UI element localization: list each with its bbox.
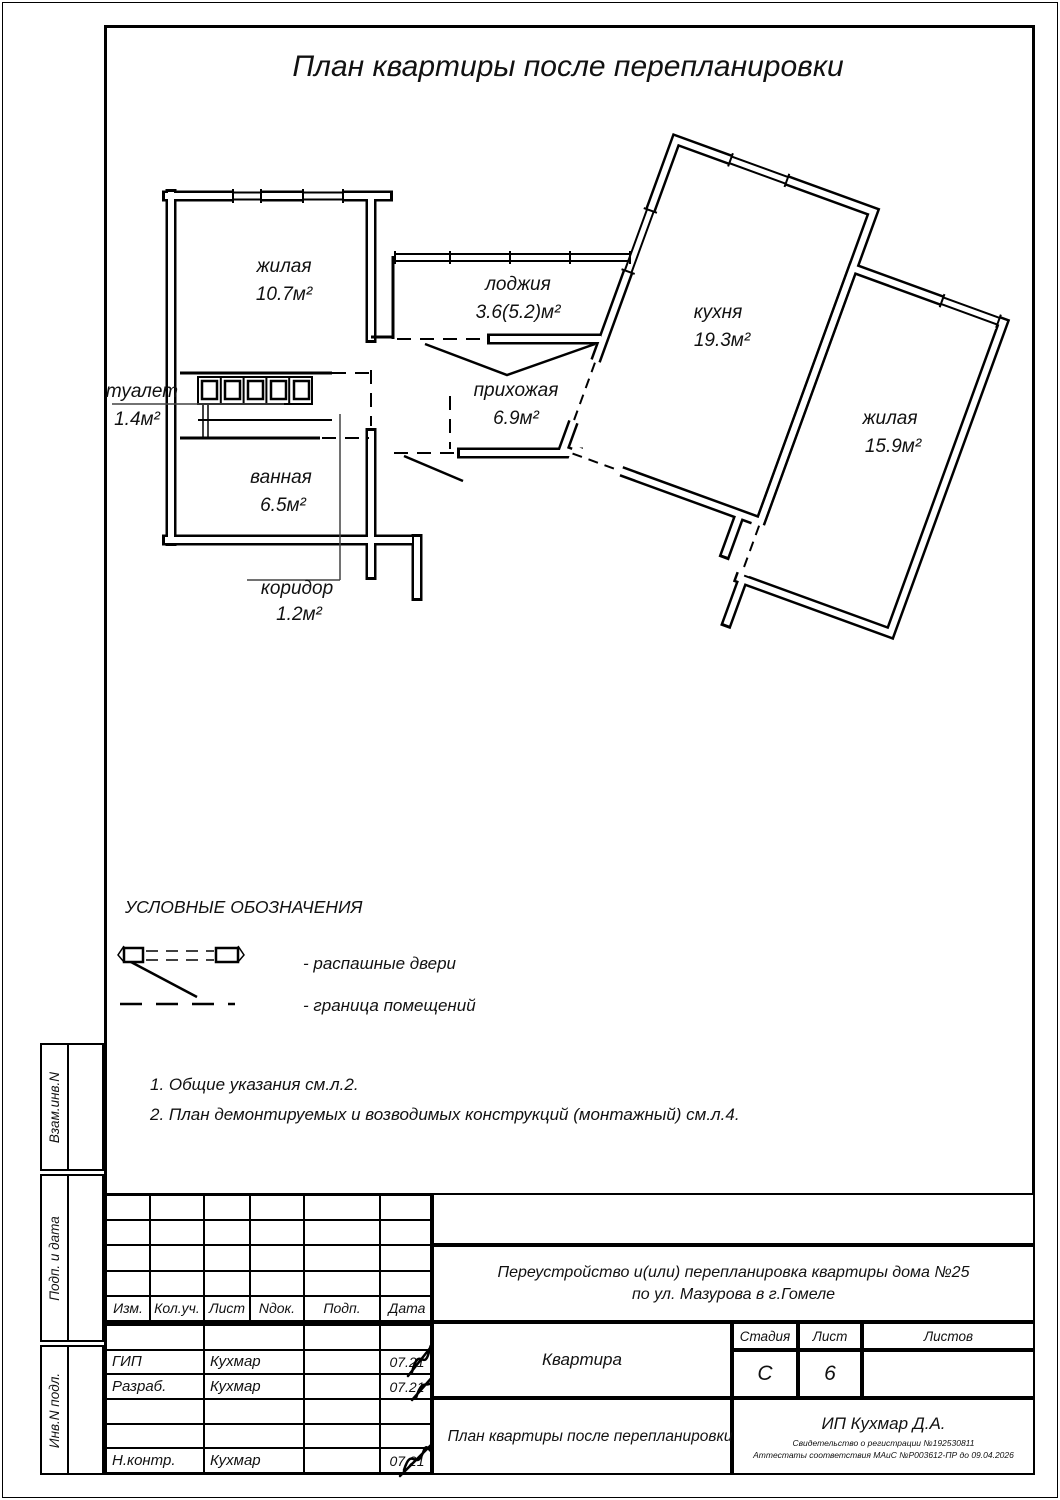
room-area: 19.3м² xyxy=(694,330,751,351)
stamp-cell xyxy=(380,1424,434,1449)
company-certificate: Свидетельство о регистрации №192530811 xyxy=(792,1438,974,1448)
room-name: ванная xyxy=(250,467,312,488)
stamp-cell xyxy=(380,1399,434,1424)
stamp-col-header: Кол.уч. xyxy=(150,1296,204,1321)
stamp-cell xyxy=(304,1424,380,1449)
company-box: ИП Кухмар Д.А. Свидетельство о регистрац… xyxy=(732,1398,1035,1475)
stamp-date: 07.21 xyxy=(380,1374,434,1399)
stage-value: С xyxy=(734,1352,796,1396)
stamp-cell xyxy=(106,1195,150,1220)
toilet-cabinet xyxy=(198,377,332,438)
room-name: жилая xyxy=(861,408,917,429)
room-labels: жилая 10.7м² лоджия 3.6(5.2)м² прихожая … xyxy=(106,256,922,625)
room-area: 15.9м² xyxy=(865,436,922,457)
stamp-signature-cell xyxy=(304,1448,380,1473)
note-line: 1. Общие указания см.л.2. xyxy=(150,1075,359,1094)
stamp-cell xyxy=(106,1220,150,1245)
stamp-cell xyxy=(304,1220,380,1245)
stamp-col-header: Nдок. xyxy=(250,1296,304,1321)
stamp-name: Кухмар xyxy=(204,1350,304,1375)
stamp-name: Кухмар xyxy=(204,1374,304,1399)
stamp-object-box: Квартира xyxy=(432,1322,732,1398)
room-name: кухня xyxy=(694,302,743,323)
stamp-cell xyxy=(204,1195,250,1220)
sheet-header-cell: Лист xyxy=(798,1322,862,1350)
stamp-role: Н.контр. xyxy=(106,1448,204,1473)
stamp-cell xyxy=(380,1195,434,1220)
company-attestation: Аттестаты соответствия МАиС №Р003612-ПР … xyxy=(753,1450,1014,1460)
stamp-col-header: Подп. xyxy=(304,1296,380,1321)
loggia-glazing xyxy=(395,251,631,264)
stamp-cell xyxy=(380,1220,434,1245)
stamp-cell xyxy=(204,1399,304,1424)
stamp-cell xyxy=(380,1325,434,1350)
stamp-signature-cell xyxy=(304,1374,380,1399)
stamp-cell xyxy=(150,1245,204,1270)
sidebar-label-cell: Инв.N подл. xyxy=(42,1347,69,1473)
stamp-cell xyxy=(304,1399,380,1424)
drawing-sheet: План квартиры после перепланировки xyxy=(0,0,1060,1500)
entrance-door-swing xyxy=(404,456,463,481)
sidebar-box-inv: Инв.N подл. xyxy=(40,1345,104,1475)
stamp-date: 07.21 xyxy=(380,1350,434,1375)
page-title: План квартиры после перепланировки xyxy=(292,50,844,83)
room-name: прихожая xyxy=(474,380,559,401)
object-name: Квартира xyxy=(434,1324,730,1396)
stamp-cell xyxy=(204,1245,250,1270)
legend: УСЛОВНЫЕ ОБОЗНАЧЕНИЯ - распашные двери -… xyxy=(118,897,476,1015)
rotated-block-openings xyxy=(537,130,1022,627)
stamp-cell xyxy=(304,1325,380,1350)
swing-door-symbol xyxy=(118,946,244,997)
room-name: коридор xyxy=(261,578,333,599)
drawing-title: План квартиры после перепланировки xyxy=(434,1400,746,1473)
room-area: 1.2м² xyxy=(276,604,322,625)
company-name: ИП Кухмар Д.А. xyxy=(821,1414,945,1434)
project-title-line2: по ул. Мазурова в г.Гомеле xyxy=(632,1286,835,1304)
stamp-col-header: Лист xyxy=(204,1296,250,1321)
stamp-cell xyxy=(250,1220,304,1245)
stamp-project-box: Переустройство и(или) перепланировка ква… xyxy=(432,1245,1035,1322)
stamp-cell xyxy=(250,1195,304,1220)
room-area: 1.4м² xyxy=(114,409,160,430)
stamp-revision-grid: Изм. Кол.уч. Лист Nдок. Подп. Дата xyxy=(104,1193,432,1323)
room-name: туалет xyxy=(106,381,178,402)
sheet-value: 6 xyxy=(800,1352,860,1396)
stamp-cell xyxy=(304,1195,380,1220)
sheets-label: Листов xyxy=(864,1324,1033,1348)
stamp-cell xyxy=(304,1271,380,1296)
stamp-role: ГИП xyxy=(106,1350,204,1375)
note-line: 2. План демонтируемых и возводимых конст… xyxy=(149,1105,740,1124)
room-area: 6.9м² xyxy=(493,408,539,429)
sidebar-label: Инв.N подл. xyxy=(47,1372,62,1447)
sidebar-box-podp: Подп. и дата xyxy=(40,1174,104,1342)
stamp-cell xyxy=(250,1245,304,1270)
notes: 1. Общие указания см.л.2. 2. План демонт… xyxy=(149,1075,740,1124)
stamp-role: Разраб. xyxy=(106,1374,204,1399)
stamp-col-header: Изм. xyxy=(106,1296,150,1321)
legend-title: УСЛОВНЫЕ ОБОЗНАЧЕНИЯ xyxy=(124,897,363,917)
room-boundaries xyxy=(322,339,487,453)
sidebar-label-cell: Взам.инв.N xyxy=(42,1045,69,1169)
stamp-cell xyxy=(150,1220,204,1245)
legend-item-label: - распашные двери xyxy=(303,954,457,973)
stamp-empty-box xyxy=(432,1193,1035,1245)
stamp-col-header: Дата xyxy=(380,1296,434,1321)
sheets-header-cell: Листов xyxy=(862,1322,1035,1350)
leader-lines xyxy=(112,404,340,580)
stamp-cell xyxy=(106,1399,204,1424)
stage-header-cell: Стадия xyxy=(732,1322,798,1350)
room-area: 3.6(5.2)м² xyxy=(476,302,562,323)
sheets-value-cell xyxy=(862,1350,1035,1398)
stamp-cell xyxy=(106,1424,204,1449)
stamp-date: 07.21 xyxy=(380,1448,434,1473)
stage-value-cell: С xyxy=(732,1350,798,1398)
sheet-value-cell: 6 xyxy=(798,1350,862,1398)
stamp-signature-grid: ГИП Кухмар 07.21 Разраб. Кухмар 07.21 Н.… xyxy=(104,1323,432,1475)
stamp-cell xyxy=(106,1325,204,1350)
sidebar-label: Подп. и дата xyxy=(47,1216,62,1301)
sidebar-label-cell: Подп. и дата xyxy=(42,1176,69,1340)
stamp-cell xyxy=(204,1220,250,1245)
stamp-cell xyxy=(150,1271,204,1296)
room-name: лоджия xyxy=(484,274,551,295)
room-name: жилая xyxy=(255,256,311,277)
sidebar-box-vzam: Взам.инв.N xyxy=(40,1043,104,1171)
project-title-line1: Переустройство и(или) перепланировка ква… xyxy=(498,1264,970,1282)
stamp-cell xyxy=(150,1195,204,1220)
stamp-cell xyxy=(106,1245,150,1270)
legend-item-label: - граница помещений xyxy=(303,996,476,1015)
sidebar-label: Взам.инв.N xyxy=(47,1071,62,1142)
stamp-cell xyxy=(304,1245,380,1270)
stamp-name: Кухмар xyxy=(204,1448,304,1473)
stage-label: Стадия xyxy=(734,1324,796,1348)
sheet-label: Лист xyxy=(800,1324,860,1348)
stamp-cell xyxy=(106,1271,150,1296)
balcony-door-swing xyxy=(425,344,595,375)
drawing-title-box: План квартиры после перепланировки xyxy=(432,1398,732,1475)
room-area: 6.5м² xyxy=(260,495,306,516)
stamp-cell xyxy=(380,1245,434,1270)
stamp-signature-cell xyxy=(304,1350,380,1375)
stamp-cell xyxy=(204,1271,250,1296)
stamp-cell xyxy=(250,1271,304,1296)
stamp-cell xyxy=(204,1325,304,1350)
room-area: 10.7м² xyxy=(256,284,313,305)
stamp-cell xyxy=(204,1424,304,1449)
stamp-cell xyxy=(380,1271,434,1296)
